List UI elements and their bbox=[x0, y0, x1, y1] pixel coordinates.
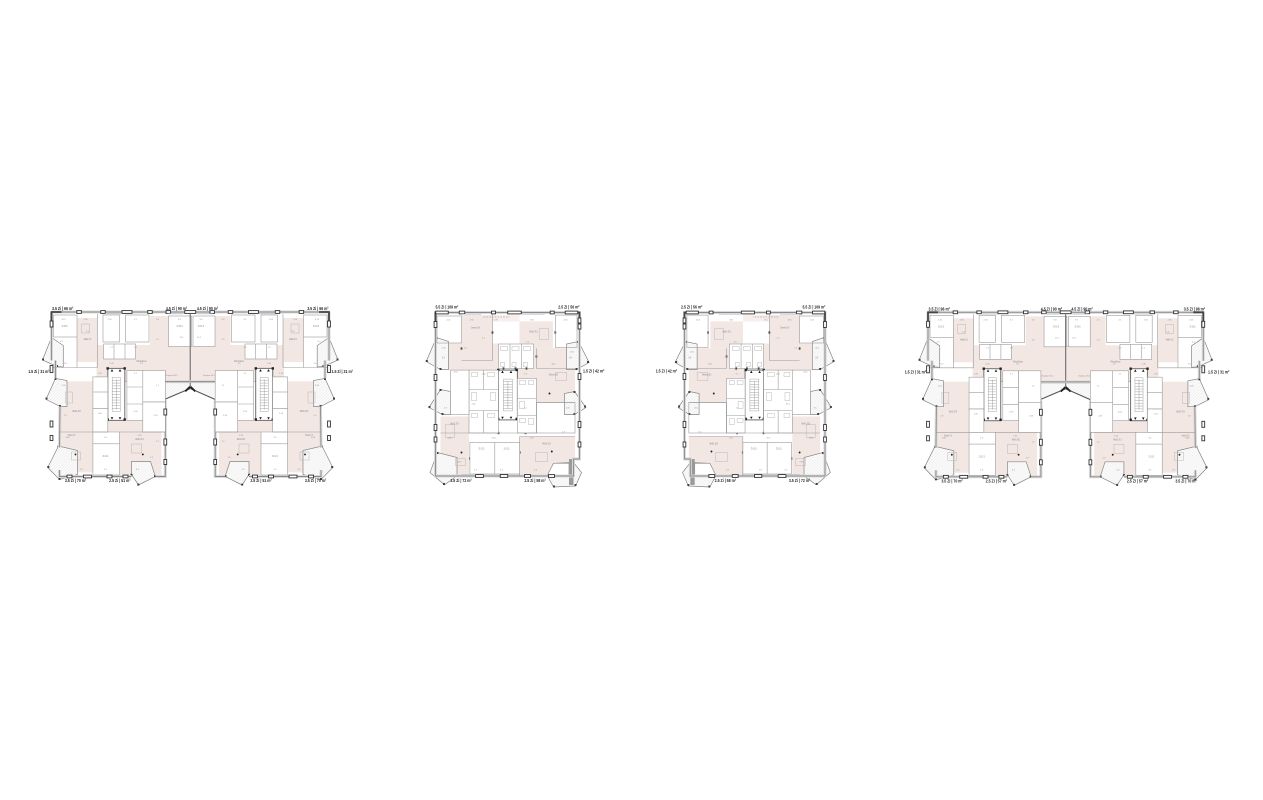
svg-text:Wo/Es 25.1: Wo/Es 25.1 bbox=[1113, 438, 1122, 441]
svg-text:Halle 5.5: Halle 5.5 bbox=[289, 338, 297, 341]
svg-text:Zi 11.5: Zi 11.5 bbox=[504, 448, 510, 451]
svg-text:2.5 Zi | 57 m²: 2.5 Zi | 57 m² bbox=[986, 478, 1008, 483]
svg-text:Wohnen/Essen: Wohnen/Essen bbox=[234, 360, 244, 363]
svg-text:4.5 Zi | 90 m²: 4.5 Zi | 90 m² bbox=[197, 306, 219, 311]
svg-text:Wo/Es 25.2: Wo/Es 25.2 bbox=[710, 443, 719, 446]
svg-text:Wo/Es 27.8: Wo/Es 27.8 bbox=[300, 410, 309, 413]
svg-text:1.5 Zi | 31 m²: 1.5 Zi | 31 m² bbox=[332, 369, 354, 374]
svg-text:3.5 Zi | 66 m²: 3.5 Zi | 66 m² bbox=[52, 306, 74, 311]
svg-text:Wo/Es 25.2: Wo/Es 25.2 bbox=[542, 443, 551, 446]
svg-text:Zi 11.5: Zi 11.5 bbox=[751, 448, 757, 451]
svg-text:5.5 Zi | 109 m²: 5.5 Zi | 109 m² bbox=[803, 305, 826, 310]
svg-text:Wo/Es 27.8: Wo/Es 27.8 bbox=[949, 410, 958, 413]
svg-text:1.5 Zi | 42 m²: 1.5 Zi | 42 m² bbox=[656, 368, 678, 373]
svg-text:Halle 5.5: Halle 5.5 bbox=[84, 338, 92, 341]
svg-text:2.5 Zi | 56 m²: 2.5 Zi | 56 m² bbox=[558, 305, 580, 310]
svg-text:Zi 12.1: Zi 12.1 bbox=[272, 455, 278, 458]
svg-text:3.5 Zi | 96 m²: 3.5 Zi | 96 m² bbox=[1184, 306, 1206, 311]
svg-text:Wohnen 36.2: Wohnen 36.2 bbox=[702, 374, 712, 377]
svg-text:Wo/Es 27.8: Wo/Es 27.8 bbox=[450, 423, 459, 426]
svg-text:2.5 Zi | 56 m²: 2.5 Zi | 56 m² bbox=[681, 305, 703, 310]
svg-text:Wohnen/Essen: Wohnen/Essen bbox=[1013, 360, 1023, 363]
svg-text:Küche 7.0: Küche 7.0 bbox=[68, 434, 76, 437]
svg-text:1.5 Zi | 31 m²: 1.5 Zi | 31 m² bbox=[1208, 369, 1230, 374]
svg-text:Wo/Es 27.8: Wo/Es 27.8 bbox=[1176, 410, 1185, 413]
svg-text:3.5 Zi | 70 m²: 3.5 Zi | 70 m² bbox=[305, 478, 327, 483]
svg-text:Zi 15.0: Zi 15.0 bbox=[1075, 325, 1081, 328]
svg-text:Zi 12.1: Zi 12.1 bbox=[1149, 455, 1155, 458]
svg-text:Küche 7.0: Küche 7.0 bbox=[305, 434, 313, 437]
svg-text:Zi 15.0: Zi 15.0 bbox=[198, 325, 204, 328]
svg-text:Zi 12.1: Zi 12.1 bbox=[103, 455, 109, 458]
svg-text:2.5 Zi | 51 m²: 2.5 Zi | 51 m² bbox=[109, 478, 131, 483]
svg-text:Zi 12.1: Zi 12.1 bbox=[979, 455, 985, 458]
svg-text:3.5 Zi | 66 m²: 3.5 Zi | 66 m² bbox=[307, 306, 329, 311]
svg-text:Wohnen/Essen: Wohnen/Essen bbox=[1111, 360, 1121, 363]
svg-text:3.5 Zi | 70 m²: 3.5 Zi | 70 m² bbox=[941, 478, 963, 483]
svg-text:1.5 Zi | 31 m²: 1.5 Zi | 31 m² bbox=[905, 369, 927, 374]
svg-text:2.5 Zi | 57 m²: 2.5 Zi | 57 m² bbox=[1127, 478, 1149, 483]
svg-text:Wo/Es 25.1: Wo/Es 25.1 bbox=[1012, 438, 1021, 441]
svg-text:3.5 Zi | 70 m²: 3.5 Zi | 70 m² bbox=[1175, 478, 1197, 483]
svg-text:Zimmer 14.5: Zimmer 14.5 bbox=[780, 327, 790, 330]
svg-text:3.5 Zi | 72 m²: 3.5 Zi | 72 m² bbox=[450, 478, 472, 483]
svg-text:Küche 7.0: Küche 7.0 bbox=[1182, 434, 1190, 437]
svg-text:2.5 Zi | 58 m²: 2.5 Zi | 58 m² bbox=[524, 478, 546, 483]
svg-text:3.5 Zi | 70 m²: 3.5 Zi | 70 m² bbox=[65, 478, 87, 483]
svg-text:Zi 11.5: Zi 11.5 bbox=[479, 448, 485, 451]
svg-text:Zi 15.0: Zi 15.0 bbox=[177, 325, 183, 328]
svg-text:Zi 11.5: Zi 11.5 bbox=[776, 448, 782, 451]
svg-text:Zi 13.5: Zi 13.5 bbox=[938, 325, 944, 328]
svg-text:Wo/Es 27.8: Wo/Es 27.8 bbox=[72, 410, 81, 413]
svg-text:Küche 7.0: Küche 7.0 bbox=[944, 434, 952, 437]
svg-text:1.5 Zi | 31 m²: 1.5 Zi | 31 m² bbox=[28, 369, 50, 374]
svg-text:2.5 Zi | 51 m²: 2.5 Zi | 51 m² bbox=[250, 478, 272, 483]
svg-text:2.5 Zi | 58 m²: 2.5 Zi | 58 m² bbox=[715, 478, 737, 483]
svg-text:3.5 Zi | 72 m²: 3.5 Zi | 72 m² bbox=[789, 478, 811, 483]
svg-text:Zimmer 14.5: Zimmer 14.5 bbox=[471, 327, 481, 330]
svg-text:Halle 5.5: Halle 5.5 bbox=[1166, 338, 1174, 341]
svg-text:Wo/Es 25.1: Wo/Es 25.1 bbox=[237, 438, 246, 441]
svg-text:Wohnen 36.2: Wohnen 36.2 bbox=[549, 374, 559, 377]
svg-text:Zi 13.5: Zi 13.5 bbox=[1190, 325, 1196, 328]
svg-text:3.5 Zi | 96 m²: 3.5 Zi | 96 m² bbox=[929, 306, 951, 311]
svg-text:Wo/Es 27.8: Wo/Es 27.8 bbox=[802, 423, 811, 426]
svg-text:Zi 15.0: Zi 15.0 bbox=[1053, 325, 1059, 328]
svg-text:4.5 Zi | 90 m²: 4.5 Zi | 90 m² bbox=[1041, 306, 1063, 311]
svg-text:4.5 Zi | 90 m²: 4.5 Zi | 90 m² bbox=[166, 306, 188, 311]
svg-text:1.5 Zi | 42 m²: 1.5 Zi | 42 m² bbox=[583, 368, 605, 373]
svg-text:5.5 Zi | 109 m²: 5.5 Zi | 109 m² bbox=[436, 305, 459, 310]
svg-text:Wo/Es 30.1: Wo/Es 30.1 bbox=[723, 331, 732, 334]
svg-text:Halle 5.5: Halle 5.5 bbox=[960, 338, 968, 341]
svg-text:Wo/Es 25.1: Wo/Es 25.1 bbox=[135, 438, 144, 441]
svg-text:Wohnen/Essen: Wohnen/Essen bbox=[137, 360, 147, 363]
svg-text:Zi 13.5: Zi 13.5 bbox=[62, 325, 68, 328]
svg-text:Wo/Es 30.1: Wo/Es 30.1 bbox=[529, 331, 538, 334]
svg-text:Zi 13.5: Zi 13.5 bbox=[313, 325, 319, 328]
svg-text:4.5 Zi | 90 m²: 4.5 Zi | 90 m² bbox=[1071, 306, 1093, 311]
